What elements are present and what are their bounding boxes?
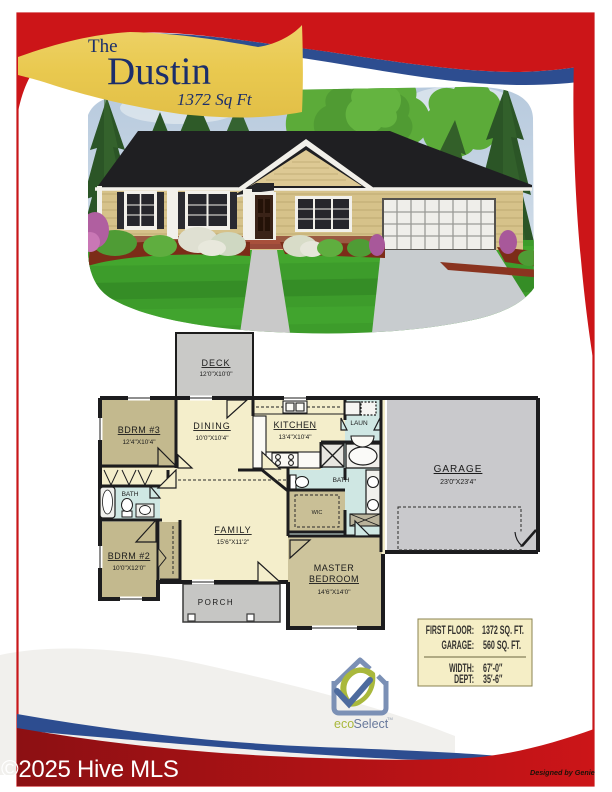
svg-text:560 SQ. FT.: 560 SQ. FT. <box>483 639 521 652</box>
svg-text:PORCH: PORCH <box>198 598 234 607</box>
svg-text:14'6"X14'0": 14'6"X14'0" <box>317 589 351 596</box>
svg-text:BEDROOM: BEDROOM <box>309 574 359 584</box>
svg-text:MASTER: MASTER <box>314 563 355 573</box>
svg-text:35′-6″: 35′-6″ <box>483 673 503 686</box>
svg-text:BDRM #3: BDRM #3 <box>118 425 161 435</box>
svg-text:TM: TM <box>387 716 393 721</box>
svg-text:15'6"X11'2": 15'6"X11'2" <box>217 539 250 546</box>
svg-text:10'0"X12'0": 10'0"X12'0" <box>112 565 146 572</box>
svg-text:BATH: BATH <box>333 477 350 484</box>
svg-text:eco: eco <box>334 717 354 731</box>
svg-text:1372 Sq Ft: 1372 Sq Ft <box>177 90 253 109</box>
svg-text:Dustin: Dustin <box>107 50 211 93</box>
svg-text:FIRST FLOOR:: FIRST FLOOR: <box>426 624 474 637</box>
svg-text:GARAGE:: GARAGE: <box>441 639 474 652</box>
svg-text:12'0"X10'0": 12'0"X10'0" <box>199 371 233 378</box>
svg-text:KITCHEN: KITCHEN <box>273 420 316 430</box>
svg-text:WIC: WIC <box>312 510 323 516</box>
svg-text:GARAGE: GARAGE <box>434 464 483 475</box>
svg-text:1372 SQ. FT.: 1372 SQ. FT. <box>482 624 524 637</box>
svg-text:23'0"X23'4": 23'0"X23'4" <box>440 479 476 486</box>
svg-text:Designed by Genie: Designed by Genie <box>530 768 595 777</box>
svg-text:BDRM #2: BDRM #2 <box>108 551 151 561</box>
svg-text:FAMILY: FAMILY <box>214 525 251 535</box>
svg-text:BATH: BATH <box>122 491 139 498</box>
svg-text:©2025 Hive MLS: ©2025 Hive MLS <box>1 756 179 783</box>
svg-text:DECK: DECK <box>201 358 230 368</box>
svg-text:DINING: DINING <box>193 421 231 431</box>
svg-text:13'4"X10'4": 13'4"X10'4" <box>278 434 312 441</box>
svg-text:Select: Select <box>354 717 389 731</box>
svg-text:10'0"X10'4": 10'0"X10'4" <box>195 435 229 442</box>
svg-text:DEPT:: DEPT: <box>454 673 474 686</box>
svg-text:LAUN: LAUN <box>350 420 368 427</box>
svg-text:12'4"X10'4": 12'4"X10'4" <box>122 439 156 446</box>
